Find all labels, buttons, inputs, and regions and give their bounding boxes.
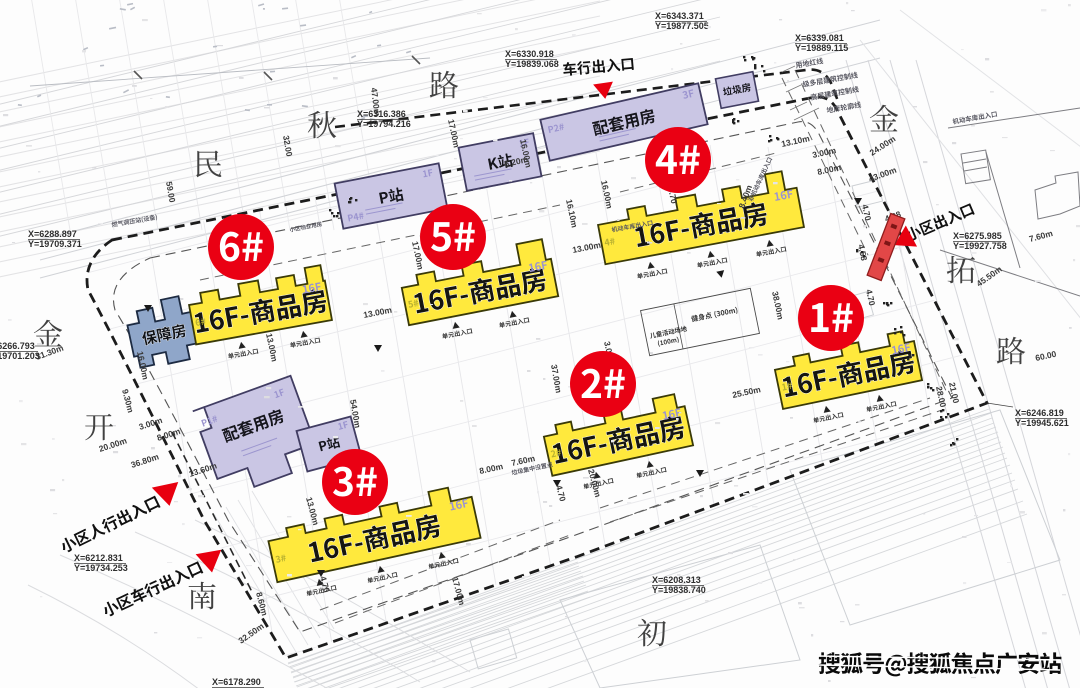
svg-text:X=6246.819: X=6246.819 [1015,408,1064,418]
svg-text:Y=19709.371: Y=19709.371 [28,239,82,249]
svg-text:X=6212.831: X=6212.831 [74,553,123,563]
svg-text:X=6266.793: X=6266.793 [0,341,35,351]
svg-text:Y=19889.115: Y=19889.115 [795,43,848,53]
svg-text:Y=19945.621: Y=19945.621 [1015,418,1069,428]
svg-text:X=6178.290: X=6178.290 [212,677,261,687]
svg-text:X=6275.985: X=6275.985 [953,231,1002,241]
svg-text:Y=19839.068: Y=19839.068 [505,59,559,69]
svg-text:X=6316.386: X=6316.386 [357,109,406,119]
svg-text:Y=19877.505: Y=19877.505 [655,21,709,31]
svg-text:Y=19794.216: Y=19794.216 [357,119,411,129]
svg-text:Y=19701.203: Y=19701.203 [0,351,40,361]
svg-text:Y=19734.253: Y=19734.253 [74,563,128,573]
svg-text:X=6208.313: X=6208.313 [652,575,701,585]
svg-text:Y=19927.758: Y=19927.758 [953,241,1007,251]
svg-text:Y=19838.740: Y=19838.740 [652,585,706,595]
svg-text:X=6330.918: X=6330.918 [505,49,554,59]
svg-text:X=6339.081: X=6339.081 [795,33,844,43]
svg-text:X=6288.897: X=6288.897 [28,229,77,239]
svg-text:X=6343.371: X=6343.371 [655,11,704,21]
